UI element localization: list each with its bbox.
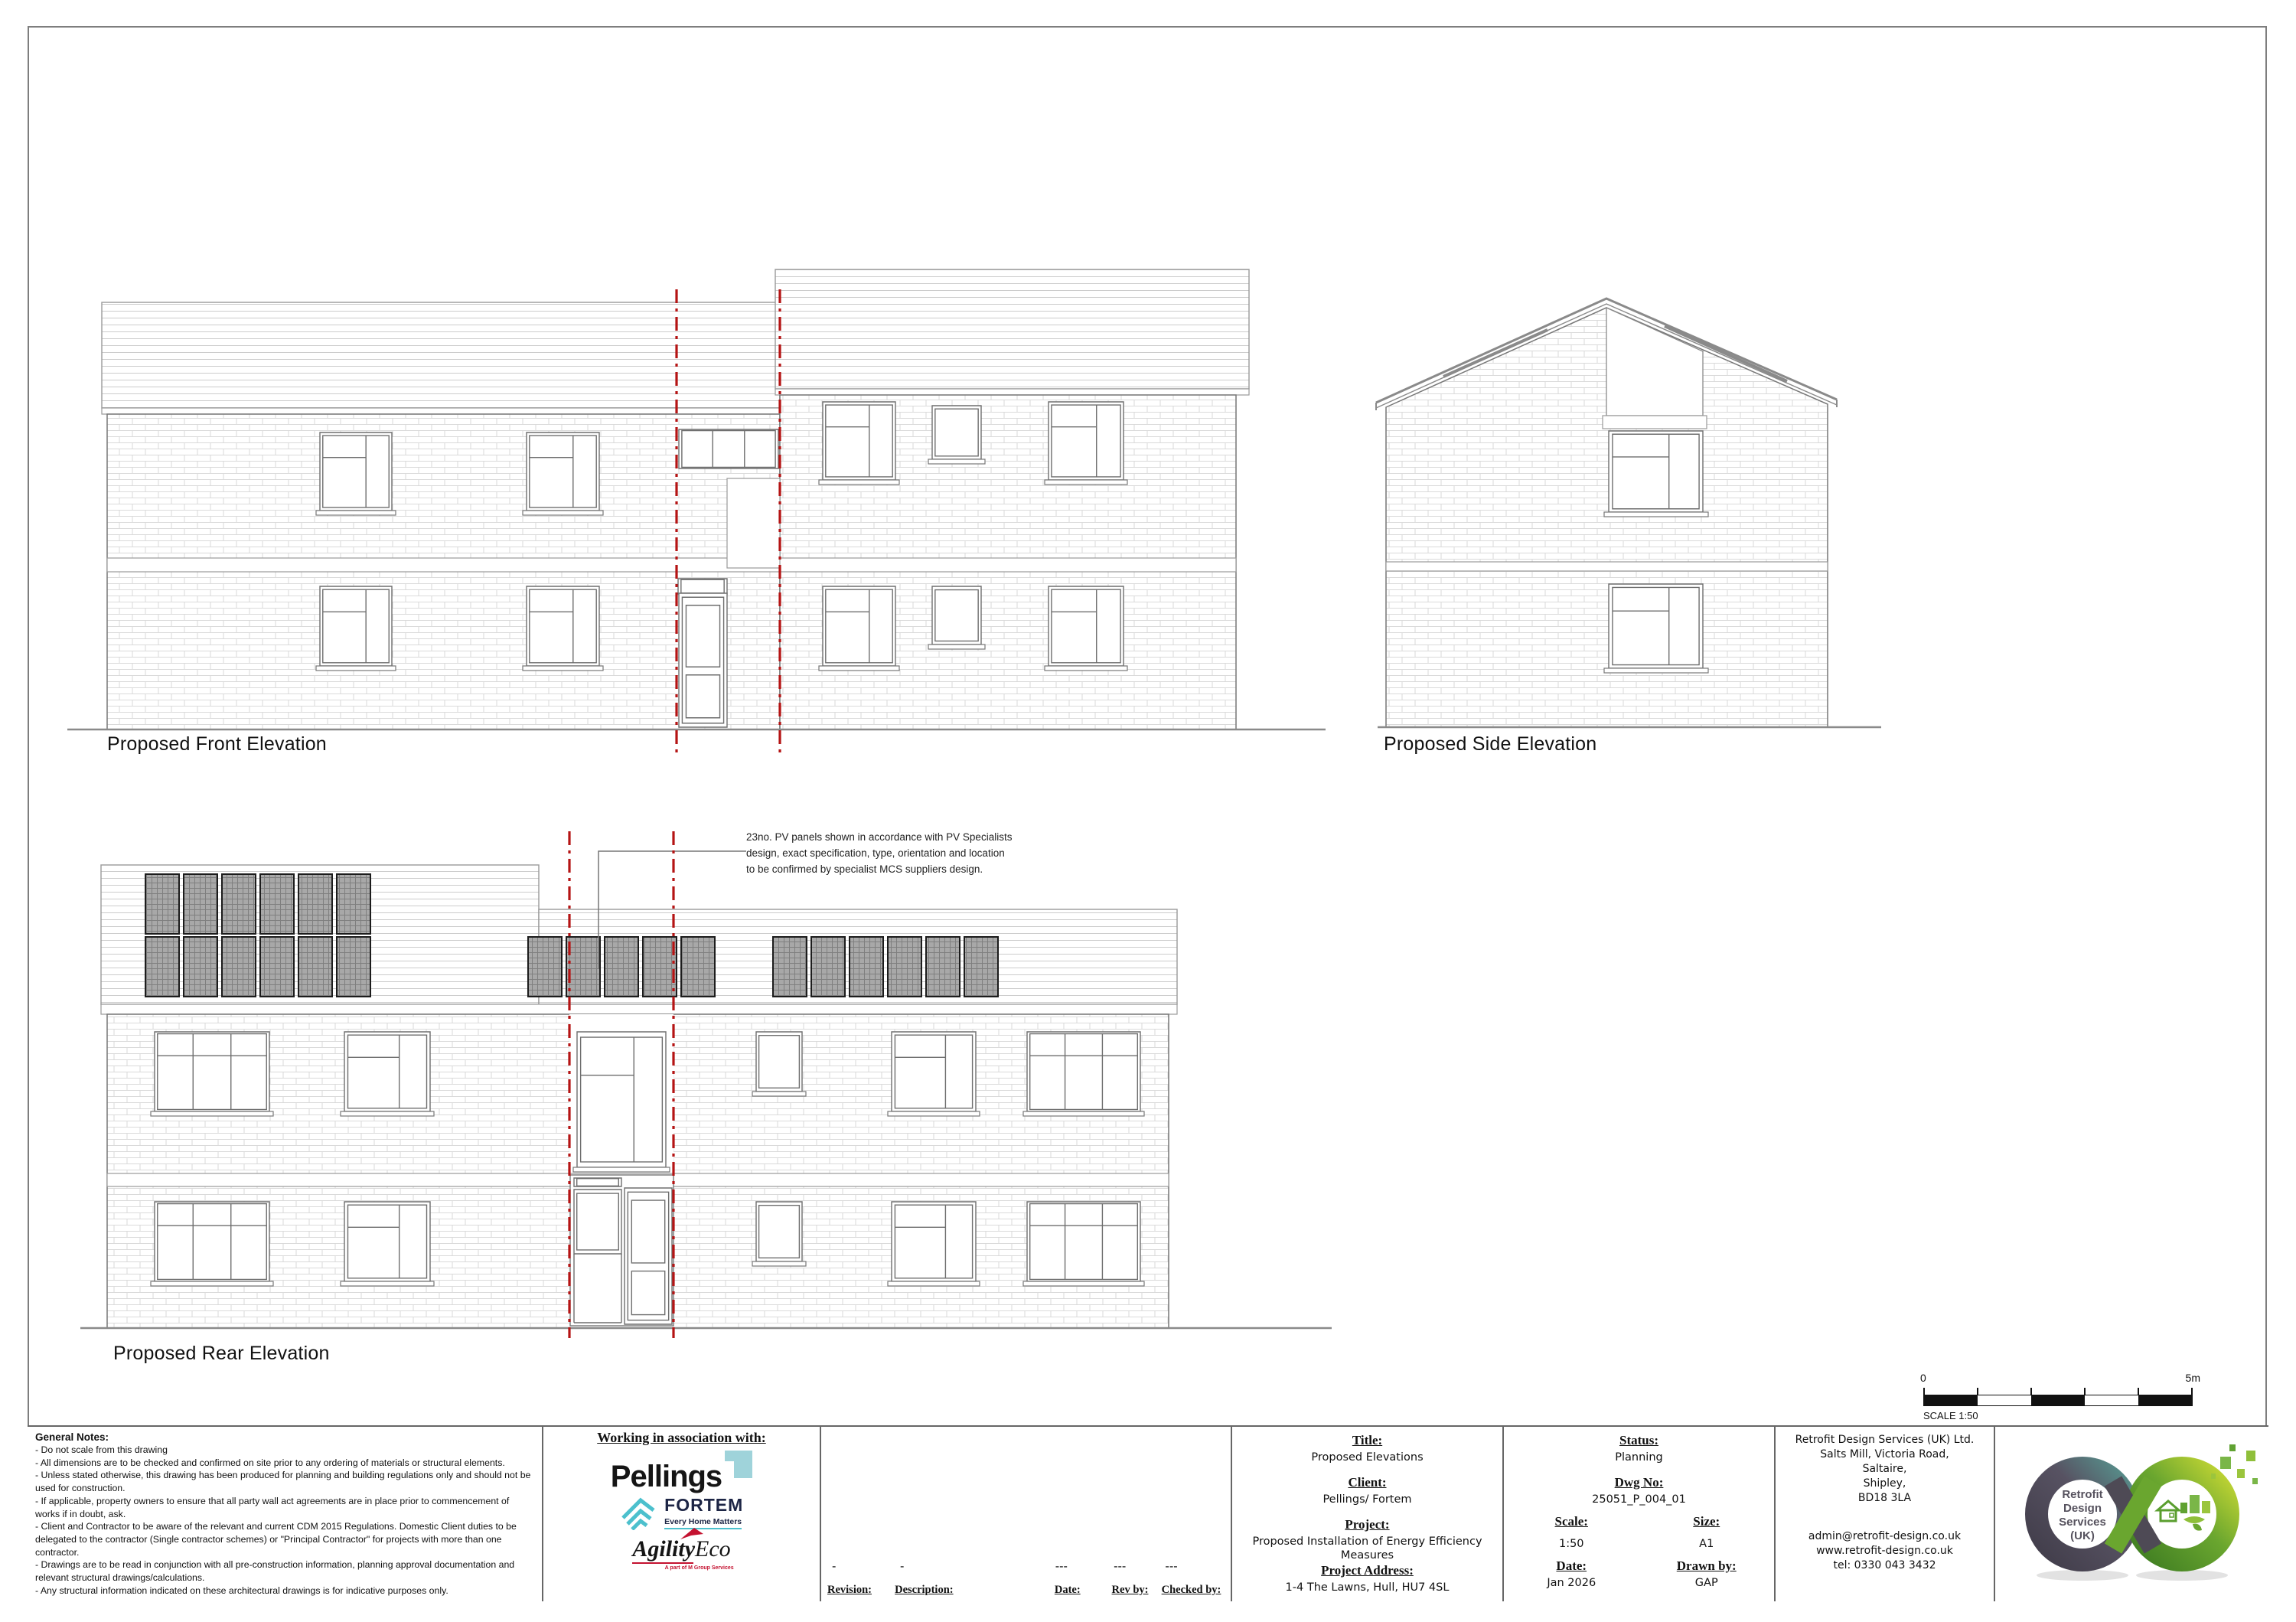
project-address-label: Project Address: (1232, 1563, 1502, 1578)
scale-bar-segments (1923, 1395, 2193, 1406)
company-phone: tel: 0330 043 3432 (1776, 1558, 1994, 1573)
scale-label: Scale: (1504, 1514, 1639, 1529)
house-icon (2157, 1501, 2179, 1521)
rds-infinity-logo: Retrofit Design Services (UK) (2000, 1435, 2264, 1593)
general-notes-heading: General Notes: (35, 1431, 534, 1443)
svg-text:Design: Design (2063, 1502, 2102, 1515)
fortem-chevron-icon (620, 1495, 661, 1530)
status-label: Status: (1504, 1433, 1774, 1448)
date-value: Jan 2026 (1504, 1576, 1639, 1590)
front-elevation-drawing (61, 253, 1332, 773)
size-value: A1 (1639, 1537, 1775, 1551)
general-note: - Unless stated otherwise, this drawing … (35, 1469, 534, 1494)
revision-label: Revision: (827, 1584, 895, 1597)
pv-annotation-line: to be confirmed by specialist MCS suppli… (746, 862, 1022, 878)
rev-date-label: Date: (1055, 1584, 1112, 1597)
title-label: Title: (1232, 1433, 1502, 1448)
scale-value: 1:50 (1504, 1537, 1639, 1551)
general-note: - If applicable, property owners to ensu… (35, 1495, 534, 1520)
company-address-line: BD18 3LA (1776, 1491, 1994, 1506)
rear-elevation-label: Proposed Rear Elevation (113, 1343, 330, 1365)
scale-bar-caption: SCALE 1:50 (1923, 1410, 1978, 1421)
side-elevation-label: Proposed Side Elevation (1384, 733, 1596, 756)
title-block: General Notes: - Do not scale from this … (28, 1425, 2268, 1601)
svg-text:Retrofit: Retrofit (2062, 1488, 2102, 1501)
rear-elevation-drawing (69, 827, 1355, 1370)
dwg-no-label: Dwg No: (1504, 1475, 1774, 1490)
company-address-line: Retrofit Design Services (UK) Ltd. (1776, 1433, 1994, 1447)
general-note: - Drawings are to be read in conjunction… (35, 1558, 534, 1584)
rev-date-value: --- (1051, 1559, 1109, 1584)
pv-annotation-line: 23no. PV panels shown in accordance with… (746, 830, 1022, 846)
date-label: Date: (1504, 1558, 1639, 1574)
rds-logo-cell: Retrofit Design Services (UK) (1995, 1427, 2268, 1601)
company-cell: Retrofit Design Services (UK) Ltd. Salts… (1776, 1427, 1995, 1601)
drawn-by-value: GAP (1639, 1576, 1775, 1590)
company-address-line: Salts Mill, Victoria Road, (1776, 1447, 1994, 1462)
size-label: Size: (1639, 1514, 1775, 1529)
pellings-logo: Pellings (611, 1451, 752, 1492)
svg-text:(UK): (UK) (2070, 1529, 2095, 1542)
pellings-logo-mark (725, 1451, 752, 1478)
svg-text:Services: Services (2059, 1516, 2106, 1529)
drawing-sheet: Proposed Front Elevation Proposed Side E… (0, 0, 2296, 1622)
general-notes-cell: General Notes: - Do not scale from this … (28, 1427, 543, 1601)
fortem-logo: FORTEM Every Home Matters (543, 1495, 820, 1530)
pv-annotation: 23no. PV panels shown in accordance with… (746, 830, 1022, 878)
side-apex-panel (1603, 308, 1707, 429)
description-value: - (895, 1559, 1051, 1584)
association-cell: Working in association with: Pellings FO… (543, 1427, 821, 1601)
agilityeco-logo: AgilityEco A part of M Group Services (632, 1538, 730, 1564)
green-cubes-icon (2180, 1495, 2210, 1531)
checked-by-value: --- (1160, 1559, 1225, 1584)
company-address-line: Saltaire, (1776, 1462, 1994, 1477)
drawn-by-label: Drawn by: (1639, 1558, 1775, 1574)
client-label: Client: (1232, 1475, 1502, 1490)
front-elevation-label: Proposed Front Elevation (107, 733, 327, 756)
association-heading: Working in association with: (543, 1430, 820, 1446)
revision-value: - (827, 1559, 895, 1584)
front-entrance-door (678, 579, 727, 727)
project-value: Proposed Installation of Energy Efficien… (1232, 1535, 1502, 1562)
company-address-line: Shipley, (1776, 1477, 1994, 1491)
general-note: - Do not scale from this drawing (35, 1444, 534, 1457)
rev-by-label: Rev by: (1112, 1584, 1162, 1597)
side-elevation-drawing (1370, 253, 1890, 773)
agilityeco-swoosh-icon (679, 1527, 705, 1541)
checked-by-label: Checked by: (1162, 1584, 1225, 1597)
rds-logo-text: Retrofit Design Services (UK) (2059, 1488, 2106, 1542)
project-info-cell: Title: Proposed Elevations Client: Pelli… (1232, 1427, 1504, 1601)
client-value: Pellings/ Fortem (1232, 1493, 1502, 1506)
company-email: admin@retrofit-design.co.uk (1776, 1529, 1994, 1544)
scale-bar: 0 5m SCALE 1:50 (1917, 1372, 2200, 1425)
pv-annotation-line: design, exact specification, type, orien… (746, 846, 1022, 862)
status-value: Planning (1504, 1451, 1774, 1464)
drawing-info-cell: Status: Planning Dwg No: 25051_P_004_01 … (1504, 1427, 1776, 1601)
dwg-no-value: 25051_P_004_01 (1504, 1493, 1774, 1506)
general-note: - All dimensions are to be checked and c… (35, 1457, 534, 1470)
general-note: - Any structural information indicated o… (35, 1584, 534, 1598)
agilityeco-underline (632, 1562, 693, 1564)
scale-bar-max-label: 5m (2186, 1372, 2200, 1384)
revision-cell: - - --- --- --- Revision: Description: D… (821, 1427, 1232, 1601)
project-address-value: 1-4 The Lawns, Hull, HU7 4SL (1232, 1581, 1502, 1594)
title-value: Proposed Elevations (1232, 1451, 1502, 1464)
pellings-logo-text: Pellings (611, 1461, 722, 1492)
side-floor-band (1386, 562, 1828, 571)
scale-bar-zero-label: 0 (1920, 1372, 1926, 1384)
project-label: Project: (1232, 1517, 1502, 1532)
rear-entrance-door (570, 1175, 673, 1326)
company-website: www.retrofit-design.co.uk (1776, 1544, 1994, 1558)
agilityeco-tagline: A part of M Group Services (665, 1565, 734, 1571)
rev-by-value: --- (1109, 1559, 1160, 1584)
fortem-logo-text: FORTEM (664, 1496, 743, 1514)
general-note: - Client and Contractor to be aware of t… (35, 1520, 534, 1558)
description-label: Description: (895, 1584, 1055, 1597)
